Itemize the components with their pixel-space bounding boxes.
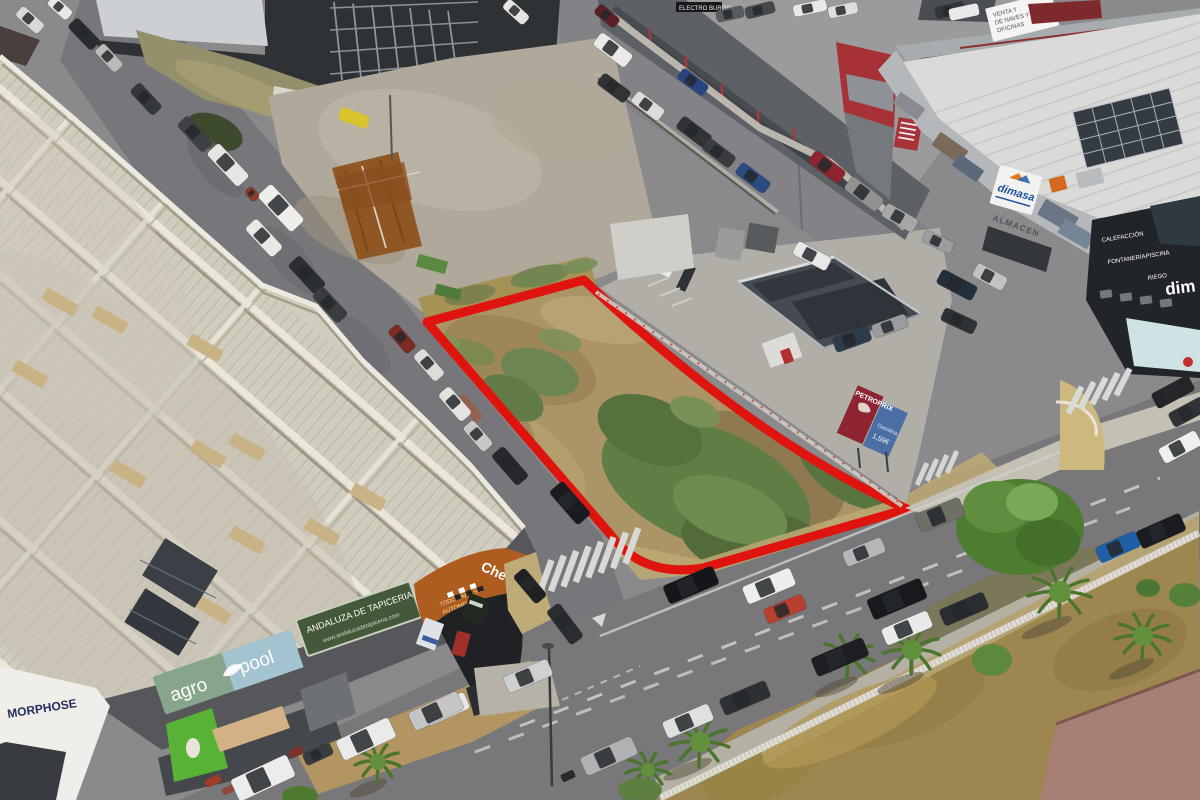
svg-text:dim: dim — [1164, 276, 1196, 299]
